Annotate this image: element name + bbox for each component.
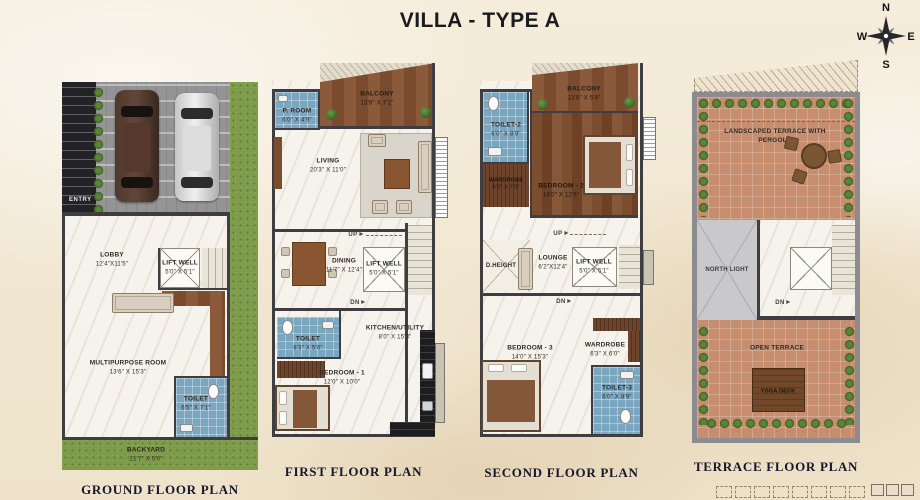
room-label-northlight: NORTH LIGHT <box>705 266 748 274</box>
stair-dn-label: DN <box>775 300 790 306</box>
room-dims: 5'0" X 5'1" <box>162 268 198 276</box>
compass-rose: N W E S <box>854 0 918 70</box>
side-planter-strip <box>62 82 96 214</box>
room-dims: 11'7" X 12'4" <box>326 266 362 274</box>
room-label-multipurpose: MULTIPURPOSE ROOM 13'6" X 15'3" <box>90 360 167 377</box>
room-name: TOILET <box>296 336 320 343</box>
terrace-floor-plan: LANDSCAPED TERRACE WITH PERGOLA NORTH LI… <box>692 92 860 443</box>
room-label-lift: LIFT WELL 5'0" X 5'1" <box>162 260 198 277</box>
room-label-dining: DINING 11'7" X 12'4" <box>326 258 362 275</box>
sofa <box>112 293 174 313</box>
room-name: BEDROOM - 2 <box>538 183 584 190</box>
wall <box>272 229 407 232</box>
room-name: TOILET-3 <box>602 385 632 392</box>
wall <box>480 434 643 437</box>
staircase <box>202 248 228 288</box>
car-brown <box>115 90 159 202</box>
room-label-wardrobe2: WARDROBE 6'0" X 7'0" <box>489 178 523 193</box>
wardrobe-3 <box>628 331 640 362</box>
toilet-wc <box>620 409 631 424</box>
wall <box>272 89 320 92</box>
room-label-kitchen: KITCHEN/UTILITY 8'0" X 15'3" <box>366 325 424 342</box>
key-plan-unit <box>735 486 751 498</box>
compass-hub <box>883 33 888 38</box>
wall <box>591 365 643 367</box>
room-name: LIFT WELL <box>366 261 402 268</box>
wall <box>527 92 529 164</box>
room-dims: 14'0" X 12'6" <box>538 191 584 199</box>
room-dims: 21'7" X 5'0" <box>127 455 165 463</box>
wall <box>277 357 341 359</box>
room-name: NORTH LIGHT <box>705 267 748 273</box>
terrace-hedge <box>843 325 855 425</box>
armchair <box>372 200 388 214</box>
dining-table <box>292 242 326 286</box>
wall <box>62 437 258 440</box>
wall <box>174 376 228 378</box>
terrace-hedge <box>697 325 709 425</box>
key-plan-unit <box>773 486 789 498</box>
stair-up-label: UP <box>348 232 363 238</box>
room-label-bedroom1: BEDROOM - 1 12'0" X 10'0" <box>319 370 365 387</box>
pillow <box>626 144 633 161</box>
staircase <box>832 225 855 295</box>
chair <box>328 247 337 256</box>
room-dims: 20'3" X 11'0" <box>310 166 346 174</box>
kitchen-counter <box>390 422 435 437</box>
bed <box>481 360 541 432</box>
wall <box>532 111 638 113</box>
pillow <box>279 411 287 425</box>
room-name: BALCONY <box>360 91 394 98</box>
pergola-stool <box>791 168 808 185</box>
key-plan-highlight-unit <box>901 484 914 496</box>
lounge-sofa <box>518 248 533 290</box>
room-name: YOGA DECK <box>761 388 796 394</box>
room-name: TOILET-2 <box>491 122 521 129</box>
exterior-duct <box>435 343 445 423</box>
room-name: BEDROOM - 3 <box>507 345 553 352</box>
living-sofa <box>418 141 432 193</box>
room-name: LIVING <box>317 158 340 165</box>
stair-dn-label: DN <box>350 300 365 306</box>
wall <box>532 215 638 218</box>
wall <box>480 293 643 296</box>
exterior-railing <box>435 137 448 218</box>
room-name: OPEN TERRACE <box>750 345 804 352</box>
room-name: LANDSCAPED TERRACE WITH PERGOLA <box>724 128 825 144</box>
key-plan-unit <box>830 486 846 498</box>
first-floor-title: FIRST FLOOR PLAN <box>272 464 435 480</box>
terrace-hedge <box>697 97 855 111</box>
wall <box>275 128 320 130</box>
stair-guide <box>366 235 402 236</box>
compass-w: W <box>857 31 868 43</box>
pergola-table <box>801 143 827 169</box>
pergola-stool <box>784 136 799 151</box>
room-dims: 14'0" X 15'3" <box>507 353 553 361</box>
p-room-fixture <box>278 95 288 102</box>
lift-well <box>790 247 832 290</box>
room-dims: 8'3" X 5'0" <box>293 344 322 352</box>
blanket <box>487 380 535 422</box>
toilet-basin <box>322 321 334 329</box>
blanket <box>589 142 621 188</box>
room-dims: 6'0" X 7'0" <box>489 185 523 192</box>
room-dims: 6'5" X 7'1" <box>181 404 210 412</box>
room-dims: 12'0" X 10'0" <box>319 378 365 386</box>
exterior-duct <box>643 250 654 285</box>
wall <box>480 89 532 92</box>
coffee-table <box>384 159 410 189</box>
second-floor-plan: BALCONY 13'8" X 5'8" TOILET-2 6'0" X 8'9… <box>480 63 643 441</box>
bed <box>275 385 330 431</box>
room-dims: 6'2"X12'4" <box>538 263 567 271</box>
room-name: LOBBY <box>100 252 124 259</box>
staircase <box>408 225 435 295</box>
toilet-basin <box>488 147 502 156</box>
pillow <box>626 169 633 186</box>
room-dims: 6'0" X 4'9" <box>282 116 311 124</box>
toilet-basin <box>180 424 193 432</box>
toilet-basin <box>620 371 634 379</box>
room-dims: 13'6" X 15'3" <box>90 368 167 376</box>
exterior-railing <box>643 117 656 160</box>
room-label-lift: LIFT WELL 5'0" X 5'1" <box>576 259 612 276</box>
terrace-floor-title: TERRACE FLOOR PLAN <box>688 459 864 475</box>
chair <box>281 269 290 278</box>
entry-door <box>274 137 282 189</box>
key-plan-unit <box>811 486 827 498</box>
key-plan-unit <box>849 486 865 498</box>
wall <box>62 212 230 216</box>
page-title: VILLA - TYPE A <box>320 9 640 33</box>
room-label-balcony: BALCONY 13'8" X 5'8" <box>567 86 601 103</box>
room-label-lobby: LOBBY 12'4"X11'5" <box>96 252 128 269</box>
room-label-bedroom2: BEDROOM - 2 14'0" X 12'6" <box>538 183 584 200</box>
balcony-plant <box>624 97 635 108</box>
room-dims: 6'0" X 8'9" <box>602 393 632 401</box>
balcony-plant <box>537 99 548 110</box>
balcony-plant <box>326 109 337 120</box>
room-name: LIFT WELL <box>162 260 198 267</box>
key-plan-unit <box>792 486 808 498</box>
wall <box>483 162 529 164</box>
wall <box>318 92 320 130</box>
compass-e: E <box>907 31 914 43</box>
room-label-wardrobe3: WARDROBE 6'3" X 6'0" <box>585 342 625 359</box>
room-name: BALCONY <box>567 86 601 93</box>
side-lawn <box>230 82 258 440</box>
car-windshield <box>121 106 153 117</box>
stair-up-label: UP <box>553 231 568 237</box>
key-plan-unit <box>754 486 770 498</box>
room-dims: 8'0" X 15'3" <box>366 333 424 341</box>
ground-floor-plan: ENTRY LOBBY 12'4"X11'5" LIFT WELL 5'0" X… <box>62 78 258 470</box>
room-dims: 13'8" X 7'2" <box>360 99 394 107</box>
room-name: MULTIPURPOSE ROOM <box>90 360 167 367</box>
pillow <box>488 364 504 372</box>
room-label-lift: LIFT WELL 5'0" X 5'1" <box>366 261 402 278</box>
room-label-bedroom3: BEDROOM - 3 14'0" X 15'3" <box>507 345 553 362</box>
toilet-wc <box>282 320 293 335</box>
compass-s: S <box>882 59 889 70</box>
car-rear-glass <box>121 177 153 188</box>
bed <box>583 135 637 195</box>
room-label-living: LIVING 20'3" X 11'0" <box>310 158 346 175</box>
room-label-balcony: BALCONY 13'8" X 7'2" <box>360 91 394 108</box>
planter-hedge <box>92 86 106 212</box>
wall <box>158 288 228 290</box>
room-dims: 12'4"X11'5" <box>96 260 128 268</box>
compass-n: N <box>882 2 890 14</box>
room-dims: 5'0" X 5'1" <box>576 267 612 275</box>
room-name: TOILET <box>184 396 208 403</box>
terrace-hedge <box>842 97 855 217</box>
ground-floor-title: GROUND FLOOR PLAN <box>62 482 258 498</box>
car-roof <box>183 126 211 171</box>
key-plan <box>716 486 916 500</box>
kitchen-sink <box>422 401 433 411</box>
room-label-toilet2: TOILET-2 6'0" X 8'9" <box>491 122 521 139</box>
wall <box>757 220 760 320</box>
wall <box>640 63 643 437</box>
key-plan-highlight-unit <box>871 484 884 496</box>
wall <box>757 316 855 320</box>
up-arrow-icon <box>565 231 569 235</box>
room-label-toilet: TOILET 6'5" X 7'1" <box>181 396 210 413</box>
wall <box>62 212 65 440</box>
room-name: BACKYARD <box>127 447 165 454</box>
car-rear-glass <box>181 177 213 188</box>
room-label-proom: P. ROOM 6'0" X 4'9" <box>282 108 311 125</box>
stair-guide <box>570 234 606 235</box>
room-label-yoga-deck: YOGA DECK <box>761 388 796 395</box>
room-name: LOUNGE <box>538 255 567 262</box>
toilet-wc <box>488 96 499 111</box>
key-plan-unit <box>716 486 732 498</box>
pergola-line <box>697 121 855 122</box>
first-floor-plan: BALCONY 13'8" X 7'2" P. ROOM 6'0" X 4'9"… <box>272 63 435 441</box>
entry-label: ENTRY <box>69 197 92 203</box>
pergola-stool <box>827 149 842 164</box>
room-name: P. ROOM <box>283 108 312 115</box>
wall <box>320 126 435 129</box>
wall <box>591 367 593 437</box>
room-dims: 5'0" X 5'1" <box>366 269 402 277</box>
car-windshield <box>181 108 213 119</box>
wall <box>227 212 230 440</box>
room-label-open-terrace: OPEN TERRACE <box>750 345 804 354</box>
up-arrow-icon <box>360 232 364 236</box>
dn-arrow-icon <box>568 299 572 303</box>
second-floor-title: SECOND FLOOR PLAN <box>480 465 643 481</box>
room-name: BEDROOM - 1 <box>319 370 365 377</box>
stair-dn-label: DN <box>556 299 571 305</box>
wall <box>530 92 532 218</box>
armchair <box>368 134 386 147</box>
room-name: D.HEIGHT <box>486 263 516 269</box>
wardrobe-3 <box>593 318 640 331</box>
key-plan-highlight-unit <box>886 484 899 496</box>
wardrobe-unit <box>210 291 225 379</box>
car-silver <box>175 93 219 201</box>
room-dims: 6'3" X 6'0" <box>585 350 625 358</box>
pillow <box>279 391 287 405</box>
kitchen-counter <box>420 330 435 437</box>
room-name: WARDROBE <box>585 342 625 349</box>
room-label-dheight: D.HEIGHT <box>486 262 516 270</box>
room-dims: 13'8" X 5'8" <box>567 94 601 102</box>
terrace-hedge <box>697 97 710 217</box>
room-name: KITCHEN/UTILITY <box>366 325 424 332</box>
car-roof <box>123 123 151 172</box>
armchair <box>396 200 412 214</box>
balcony-plant <box>420 107 431 118</box>
wardrobe-unit <box>277 361 325 378</box>
kitchen-stove <box>422 363 433 379</box>
chair <box>281 247 290 256</box>
dn-arrow-icon <box>362 300 366 304</box>
room-dims: 6'0" X 8'9" <box>491 130 521 138</box>
room-label-toilet3: TOILET-3 6'0" X 8'9" <box>602 385 632 402</box>
pillow <box>511 364 527 372</box>
room-label-toilet: TOILET 8'3" X 5'0" <box>293 336 322 353</box>
room-name: WARDROBE <box>489 178 523 184</box>
terrace-hedge <box>705 417 847 432</box>
room-name: DINING <box>332 258 356 265</box>
wall <box>339 311 341 359</box>
wall <box>174 376 176 437</box>
room-name: LIFT WELL <box>576 259 612 266</box>
room-label-backyard: BACKYARD 21'7" X 5'0" <box>127 447 165 464</box>
blanket <box>293 390 317 428</box>
dn-arrow-icon <box>787 300 791 304</box>
room-label-lounge: LOUNGE 6'2"X12'4" <box>538 255 567 272</box>
